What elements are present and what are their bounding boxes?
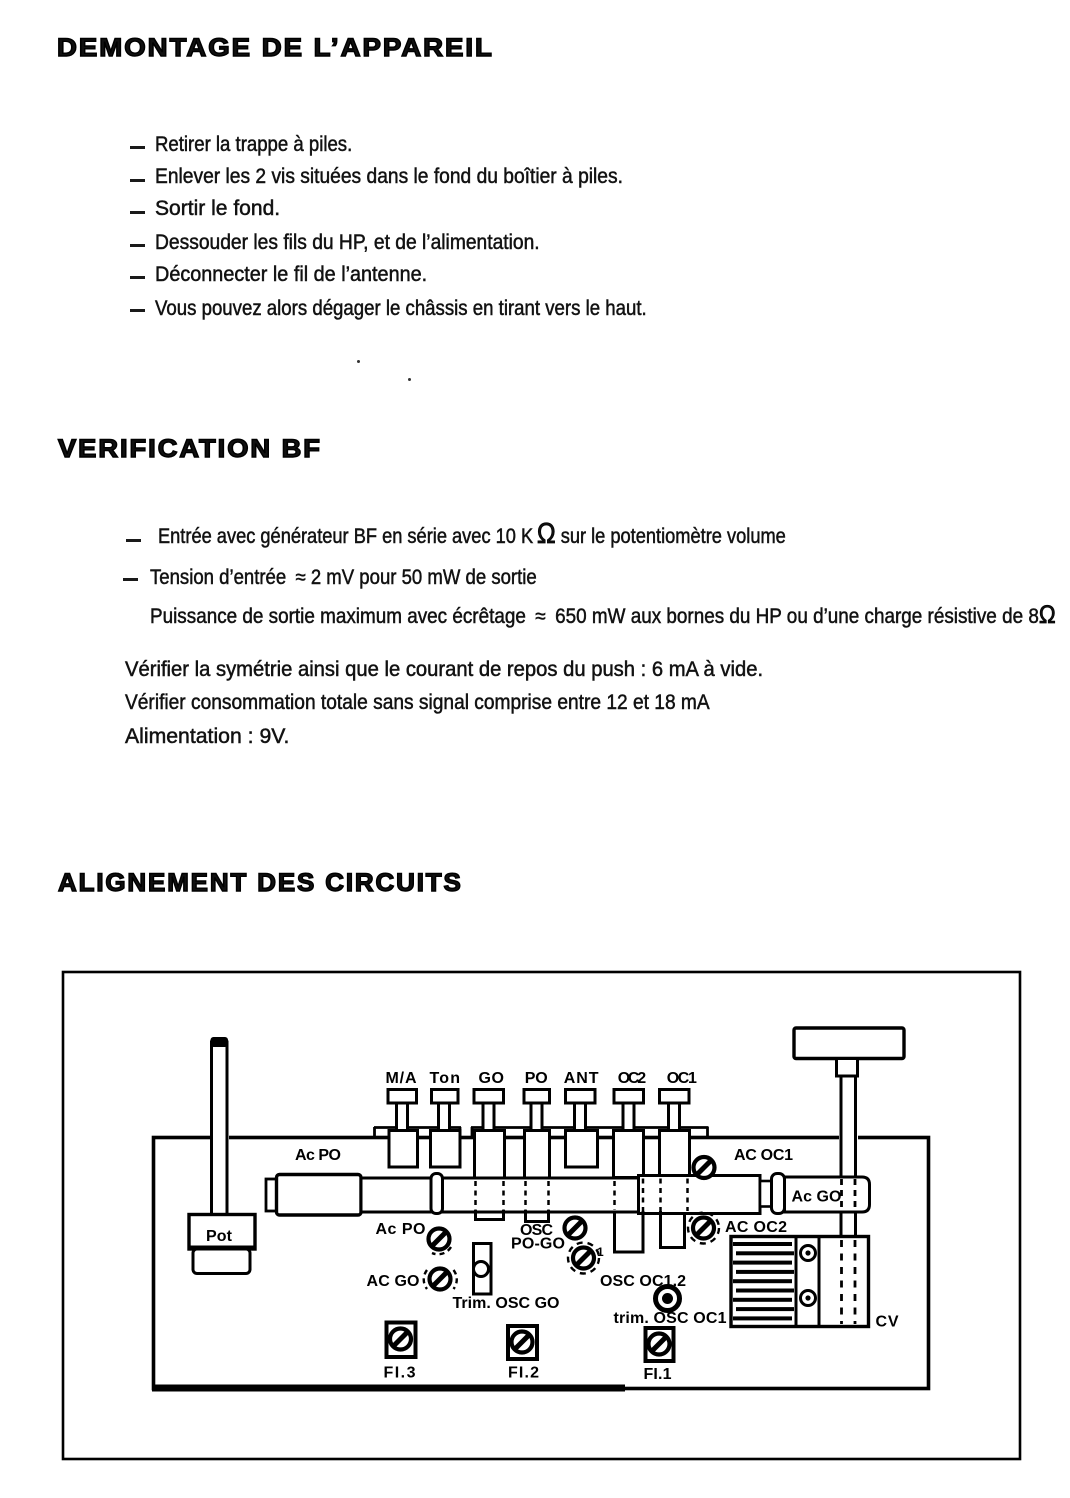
svg-text:AC GO: AC GO bbox=[367, 1273, 420, 1290]
svg-text:Pot: Pot bbox=[206, 1228, 233, 1245]
svg-text:Ac PO: Ac PO bbox=[295, 1147, 341, 1164]
svg-text:Ac GO: Ac GO bbox=[792, 1189, 842, 1206]
svg-text:Trim. OSC GO: Trim. OSC GO bbox=[453, 1295, 560, 1312]
svg-text:GO: GO bbox=[479, 1070, 505, 1087]
svg-text:CV: CV bbox=[876, 1314, 899, 1331]
svg-text:PO: PO bbox=[525, 1070, 548, 1087]
svg-text:M/A: M/A bbox=[386, 1070, 417, 1087]
svg-text:Ton: Ton bbox=[430, 1070, 461, 1087]
svg-text:AC OC2: AC OC2 bbox=[725, 1219, 787, 1236]
svg-text:AC OC1: AC OC1 bbox=[734, 1147, 793, 1164]
svg-text:FI.3: FI.3 bbox=[384, 1365, 416, 1382]
svg-text:OC2: OC2 bbox=[618, 1070, 646, 1087]
svg-text:trim. OSC OC1: trim. OSC OC1 bbox=[614, 1310, 727, 1327]
svg-text:PO-GO: PO-GO bbox=[511, 1236, 565, 1253]
svg-text:OC1: OC1 bbox=[667, 1070, 697, 1087]
svg-text:1: 1 bbox=[597, 1245, 604, 1259]
svg-text:FI.1: FI.1 bbox=[644, 1366, 672, 1383]
svg-text:ANT: ANT bbox=[564, 1070, 599, 1087]
svg-text:OSC OC1.2: OSC OC1.2 bbox=[600, 1273, 686, 1290]
svg-text:FI.2: FI.2 bbox=[508, 1365, 539, 1382]
svg-text:Ac PO: Ac PO bbox=[376, 1221, 426, 1238]
